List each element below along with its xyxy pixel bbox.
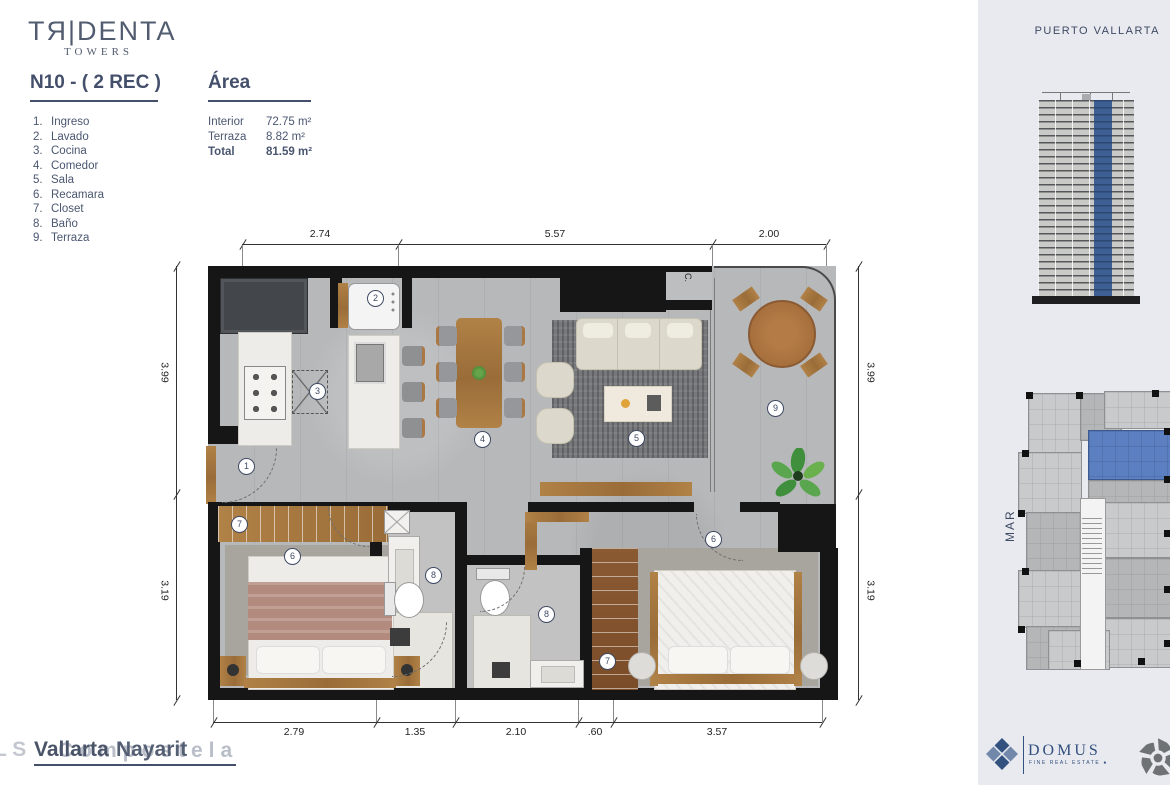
legend-item: 8.Baño xyxy=(33,218,104,233)
keyplan-unit xyxy=(1104,618,1170,668)
dim-ext xyxy=(826,245,827,266)
footer-layer-2: Vallarta xyxy=(34,738,109,762)
shower-head xyxy=(492,662,510,678)
badge-recamara-1: 6 xyxy=(284,548,301,565)
basin xyxy=(541,666,575,683)
area-title: Área xyxy=(208,72,250,94)
sofa xyxy=(576,318,702,370)
badge-bano-2: 8 xyxy=(538,606,555,623)
unit-title-rule xyxy=(30,100,158,102)
dim-top-2: 5.57 xyxy=(525,228,585,241)
dim-tick xyxy=(855,489,862,500)
dim-tick xyxy=(173,695,180,706)
bed-2-pillow xyxy=(730,646,790,674)
armchair xyxy=(536,362,574,398)
area-title-rule xyxy=(208,100,311,102)
terrace-glass-door xyxy=(710,278,711,492)
dim-right-2: 3.19 xyxy=(864,571,877,611)
keyplan-column xyxy=(1076,392,1083,399)
sofa-pillow xyxy=(583,323,613,338)
dim-ext xyxy=(455,700,456,722)
keyplan-unit xyxy=(1104,502,1170,558)
badge-lavado: 2 xyxy=(367,290,384,307)
skylight-shaft xyxy=(384,510,410,534)
sofa-seam xyxy=(659,319,660,369)
dim-tick xyxy=(173,261,180,272)
wall xyxy=(740,502,780,512)
terrace-glass-door xyxy=(714,278,715,492)
stove xyxy=(244,366,286,420)
sea-label: MAR xyxy=(1003,482,1017,542)
partner-logo-icon xyxy=(1136,736,1170,780)
armchair xyxy=(536,408,574,444)
keyplan-unit xyxy=(1026,512,1082,572)
brand-logo-sub: TOWERS xyxy=(64,46,133,58)
hall-closet-label: C. xyxy=(683,273,693,293)
dim-top-3: 2.00 xyxy=(739,228,799,241)
dim-tick xyxy=(173,489,180,500)
side-table xyxy=(800,652,828,680)
side-table xyxy=(628,652,656,680)
badge-ingreso: 1 xyxy=(238,458,255,475)
area-row-interior: Interior72.75 m² xyxy=(208,116,312,131)
bar-stool xyxy=(402,346,425,366)
dim-line-top xyxy=(242,244,826,245)
terrace-plant-icon xyxy=(770,448,826,502)
bar-stool xyxy=(402,382,425,402)
keyplan-column xyxy=(1164,428,1170,435)
legend-item: 3.Cocina xyxy=(33,145,104,160)
dim-ext xyxy=(376,700,377,722)
unit-title: N10 - ( 2 REC ) xyxy=(30,72,161,94)
dim-top-1: 2.74 xyxy=(290,228,350,241)
footer-layer-1: L S xyxy=(0,738,26,762)
bed-2-pillow xyxy=(668,646,728,674)
tv-console xyxy=(540,482,692,496)
keyplan-column xyxy=(1152,390,1159,397)
dim-ext xyxy=(578,700,579,722)
sidebar: PUERTO VALLARTA xyxy=(978,0,1170,785)
lamp-icon xyxy=(227,664,239,676)
legend-item: 6.Recamara xyxy=(33,189,104,204)
dim-ext xyxy=(242,245,243,266)
area-row-terraza: Terraza8.82 m² xyxy=(208,131,312,146)
keyplan xyxy=(1018,390,1170,668)
entry-threshold xyxy=(206,446,216,504)
keyplan-unit xyxy=(1018,570,1082,628)
coffee-table xyxy=(604,386,672,422)
domus-name: DOMUS xyxy=(1028,742,1101,760)
dining-chair xyxy=(504,362,525,382)
keyplan-column xyxy=(1164,586,1170,593)
wall xyxy=(208,426,240,444)
legend-item: 9.Terraza xyxy=(33,232,104,247)
dim-left-2: 3.19 xyxy=(158,571,171,611)
area-row-total: Total81.59 m² xyxy=(208,146,312,161)
footer-layer-3: Nayarit xyxy=(116,738,187,762)
legend-item: 7.Closet xyxy=(33,203,104,218)
keyplan-stairs xyxy=(1082,518,1102,574)
keyplan-unit xyxy=(1018,452,1082,514)
keyplan-column xyxy=(1022,450,1029,457)
keyplan-column xyxy=(1164,476,1170,483)
bed-1-blanket xyxy=(248,582,392,640)
dining-chair xyxy=(436,326,457,346)
wall xyxy=(528,502,694,512)
legend-item: 4.Comedor xyxy=(33,160,104,175)
keyplan-column xyxy=(1018,626,1025,633)
building-base xyxy=(1032,296,1140,304)
legend-item: 1.Ingreso xyxy=(33,116,104,131)
building-render xyxy=(1038,92,1134,308)
footer-underline xyxy=(34,764,236,766)
wall xyxy=(455,502,467,690)
floor-plan: C. xyxy=(180,230,880,745)
laundry-shelf xyxy=(338,283,348,328)
brand-logo: TЯ|DENTA xyxy=(28,16,177,47)
dim-ext xyxy=(712,245,713,266)
dim-line-bottom xyxy=(213,722,822,723)
location-label: PUERTO VALLARTA xyxy=(1035,25,1160,37)
room-legend: 1.Ingreso 2.Lavado 3.Cocina 4.Comedor 5.… xyxy=(33,116,104,247)
badge-comedor: 4 xyxy=(474,431,491,448)
dining-chair xyxy=(504,398,525,418)
structural-column xyxy=(778,504,836,552)
dining-chair xyxy=(504,326,525,346)
domus-tagline: FINE REAL ESTATE ● xyxy=(1029,760,1108,766)
table-plant-icon xyxy=(472,366,486,380)
wall xyxy=(402,278,412,328)
wall xyxy=(208,266,220,436)
dim-bottom-3: 2.10 xyxy=(486,726,546,739)
badge-terraza: 9 xyxy=(767,400,784,417)
domus-logo-icon xyxy=(986,738,1018,770)
badge-sala: 5 xyxy=(628,430,645,447)
table-decor xyxy=(647,395,661,411)
dining-chair xyxy=(436,362,457,382)
dim-line-left xyxy=(176,266,177,700)
keyplan-column xyxy=(1026,392,1033,399)
brochure-page: TЯ|DENTA TOWERS N10 - ( 2 REC ) Área 1.I… xyxy=(0,0,1170,785)
bed-1-pillow xyxy=(256,646,320,674)
badge-closet-1: 7 xyxy=(231,516,248,533)
bed-2-headboard xyxy=(650,674,802,684)
dim-left-1: 3.99 xyxy=(158,353,171,393)
badge-cocina: 3 xyxy=(309,383,326,400)
keyplan-column xyxy=(1074,660,1081,667)
building-blue-stripe xyxy=(1094,100,1112,296)
badge-bano-1: 8 xyxy=(425,567,442,584)
dim-line-right xyxy=(858,266,859,700)
building-mullions xyxy=(1038,100,1134,296)
hall-vanity xyxy=(525,512,589,522)
keyplan-column xyxy=(1164,530,1170,537)
keyplan-column xyxy=(1138,658,1145,665)
keyplan-unit-highlighted xyxy=(1088,430,1170,480)
footer-overlap-text: L S Compostela Vallarta Nayarit xyxy=(0,735,320,775)
area-table: Interior72.75 m² Terraza8.82 m² Total81.… xyxy=(208,116,312,161)
keyplan-unit xyxy=(1104,558,1170,618)
sofa-pillow xyxy=(667,323,693,338)
badge-closet-2: 7 xyxy=(599,653,616,670)
keyplan-column xyxy=(1018,510,1025,517)
refrigerator-counter xyxy=(220,278,308,334)
legend-item: 2.Lavado xyxy=(33,131,104,146)
bed-1-pillow xyxy=(322,646,386,674)
dim-ext xyxy=(613,700,614,722)
keyplan-column xyxy=(1164,640,1170,647)
keyplan-column xyxy=(1022,568,1029,575)
roof-line xyxy=(1042,92,1130,93)
shower-2 xyxy=(473,615,531,690)
bed-1-headboard xyxy=(244,678,396,688)
dim-tick xyxy=(855,261,862,272)
dim-right-1: 3.99 xyxy=(864,353,877,393)
badge-recamara-2: 6 xyxy=(705,531,722,548)
service-shaft xyxy=(560,268,666,312)
sofa-pillow xyxy=(625,323,651,338)
dim-tick xyxy=(855,695,862,706)
sofa-seam xyxy=(617,319,618,369)
terrace-table xyxy=(748,300,816,368)
dim-ext xyxy=(213,700,214,722)
dim-ext xyxy=(398,245,399,266)
legend-item: 5.Sala xyxy=(33,174,104,189)
bar-stool xyxy=(402,418,425,438)
toilet xyxy=(394,582,424,618)
dim-ext xyxy=(822,700,823,722)
keyplan-unit xyxy=(1104,391,1170,429)
dim-bottom-4: .60 xyxy=(565,726,625,739)
dining-chair xyxy=(436,398,457,418)
wall xyxy=(666,300,712,310)
partner-divider xyxy=(1023,736,1024,774)
keyplan-unit xyxy=(1028,393,1082,455)
dim-bottom-5: 3.57 xyxy=(687,726,747,739)
bathroom-2-sink xyxy=(530,660,584,688)
dim-bottom-2: 1.35 xyxy=(385,726,445,739)
sink xyxy=(354,342,386,384)
table-decor xyxy=(621,399,630,408)
